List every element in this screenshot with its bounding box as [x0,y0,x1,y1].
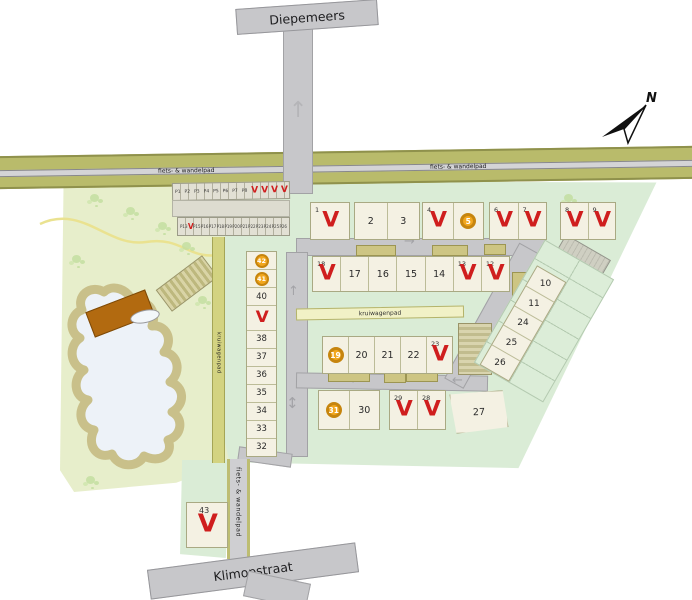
wheelbarrow-path-label: kruiwagenpad [216,332,222,463]
parking-stall-label: P20 [232,224,240,229]
parking-stall-label: P23 [256,224,264,229]
sold-marker-icon: V [566,212,582,231]
parking-stall-label: P6 [223,189,229,194]
parking-stall-label: P4 [204,189,210,194]
plot-number: 32 [256,442,267,452]
plot-number: 16 [377,269,389,280]
plot-33[interactable]: 33 [247,420,276,438]
plot-number: 36 [256,370,267,380]
plot-36[interactable]: 36 [247,366,276,384]
parking-stall-label: P5 [213,189,219,194]
parking-aisle [172,200,290,217]
plot-39[interactable]: V [247,305,276,330]
plot-group-top-1: 1V [310,202,350,240]
plot-3[interactable]: 3 [387,203,420,239]
sold-marker-icon: V [396,401,412,420]
plot-18[interactable]: 18V [313,257,340,291]
plot-42[interactable]: 42 [247,252,276,269]
plot-9[interactable]: 9V [588,203,616,239]
site-plan-map: fiets- & wandelpad fiets- & wandelpad ↑ … [0,0,692,600]
plot-40[interactable]: 40 [247,287,276,305]
sold-marker-icon: V [424,401,440,420]
sold-marker-icon: V [251,186,257,195]
street-sign-diepemeers: Diepemeers [235,0,378,35]
bike-path-label: fiets- & wandelpad [158,168,215,175]
option-badge: 42 [255,254,269,268]
plot-22[interactable]: 22 [400,337,426,373]
plot-group-top-3: 4V 5 [422,202,484,240]
parking-stall-label: P1 [175,189,181,194]
plot-group-inner-row: 19 20 21 22 23V [322,336,453,374]
parking-stall-label: P26 [279,224,287,229]
plot-35[interactable]: 35 [247,384,276,402]
plot-6[interactable]: 6V [490,203,518,239]
plot-41[interactable]: 41 [247,269,276,287]
plot-14[interactable]: 14 [425,257,453,291]
sold-marker-icon: V [430,212,446,231]
plot-number: 33 [256,424,267,434]
plot-number: 17 [349,269,361,280]
plot-1[interactable]: 1V [311,203,349,239]
bush-icon [126,207,135,215]
bike-path: fiets- & wandelpad fiets- & wandelpad [0,160,692,178]
plot-5[interactable]: 5 [453,203,484,239]
loop-road-west [286,252,308,457]
arrow-up-icon: ↑ [289,100,307,122]
plot-29[interactable]: 29V [390,391,417,429]
bush-icon [158,222,167,230]
option-badge: 19 [328,347,344,363]
plot-number: 1 [315,206,319,214]
plot-number: 25 [506,338,517,348]
sold-marker-icon: V [524,212,540,231]
sold-marker-icon: V [319,265,335,284]
plot-number: 3 [400,216,406,227]
sold-marker-icon: V [488,265,504,284]
parking-stall-label: P3 [194,189,200,194]
plot-number: 24 [517,318,528,328]
parking-stall-label: P16 [201,224,209,229]
sold-marker-icon: V [460,265,476,284]
bike-path-south: fiets- & wandelpad [227,459,250,559]
plot-number: 22 [407,350,419,361]
plot-38[interactable]: 38 [247,330,276,348]
parking-stall-label: P25 [272,224,280,229]
plot-15[interactable]: 15 [396,257,424,291]
plot-8[interactable]: 8V [561,203,588,239]
plot-27[interactable]: 27 [449,390,508,434]
plot-19[interactable]: 19 [323,337,348,373]
plot-group-left-column: 42 41 40 V 38 37 36 35 34 33 32 [246,251,277,457]
bush-icon [86,476,95,484]
option-badge: 41 [255,272,269,286]
bush-icon [564,194,573,202]
option-badge: 5 [460,213,476,229]
plot-group-top-5: 8V 9V [560,202,616,240]
plot-number: 2 [368,216,374,227]
garage-block [432,245,468,256]
plot-number: 11 [529,299,540,309]
plot-7[interactable]: 7V [518,203,547,239]
sold-marker-icon: V [271,186,277,195]
plot-number: 26 [494,358,505,368]
plot-23[interactable]: 23V [426,337,452,373]
plot-number: 35 [256,388,267,398]
parking-stall-label: P22 [248,224,256,229]
parking-stall-label: P18 [217,224,225,229]
parking-stall-label: P21 [240,224,248,229]
parking-stall-label: P24 [264,224,272,229]
option-badge: 31 [326,402,342,418]
plot-30[interactable]: 30 [349,391,380,429]
plot-31[interactable]: 31 [319,391,349,429]
wheelbarrow-path-vertical: kruiwagenpad [212,237,225,463]
garage-block [384,373,406,383]
plot-group-top-2: 2 3 [354,202,420,240]
sold-marker-icon: V [188,223,193,231]
arrow-left-icon: ← [452,374,463,387]
bush-icon [90,194,99,202]
plot-number: 20 [355,350,367,361]
plot-number: 10 [540,279,551,289]
sold-marker-icon: V [594,212,610,231]
plot-number: 21 [381,350,393,361]
plot-group-bottom-1: 31 30 [318,390,380,430]
plot-number: 30 [358,405,370,416]
parking-stall-label: P8 [242,188,248,193]
parking-stall-label: P13 [180,224,188,229]
plot-group-bottom-2: 29V 28V [389,390,446,430]
parking-stall-label: P7 [232,188,238,193]
arrow-up-down-icon: ↕ [286,396,299,411]
sold-marker-icon: V [432,346,448,365]
plot-number: 37 [256,352,267,362]
garage-block [356,245,396,256]
plot-12[interactable]: 12V [481,257,509,291]
street-name: Diepemeers [269,7,345,27]
north-label: N [646,91,657,106]
loop-road-top [296,238,546,256]
plot-20[interactable]: 20 [348,337,374,373]
plot-28[interactable]: 28V [417,391,445,429]
sold-marker-icon: V [281,186,287,195]
plot-group-top-4: 6V 7V [489,202,547,240]
parking-row-1: P1 P2 P3 P4 P5 P6 P7 P8 V V V V [172,181,290,201]
plot-number: 15 [405,269,417,280]
bush-icon [198,296,207,304]
bush-icon [182,242,191,250]
bush-icon [72,255,81,263]
wheelbarrow-path-label: kruiwagenpad [359,309,402,317]
sold-marker-icon: V [256,311,268,326]
bike-path-label: fiets- & wandelpad [235,467,243,559]
parking-row-2: P13 V P15 P16 P17 P18 P19 P20 P21 P22 P2… [177,217,290,236]
plot-16[interactable]: 16 [368,257,396,291]
parking-stall-label: P15 [193,224,201,229]
north-compass: N [598,93,662,151]
plot-21[interactable]: 21 [374,337,400,373]
plot-37[interactable]: 37 [247,348,276,366]
garage-block [484,244,506,255]
plot-number: 27 [473,406,485,417]
plot-group-mid-row: 18V 17 16 15 14 13V 12V [312,256,510,292]
plot-4[interactable]: 4V [423,203,453,239]
parking-stall-label: P19 [224,224,232,229]
sold-marker-icon: V [198,514,217,536]
parking-stall-label: P17 [209,224,217,229]
plot-number: 34 [256,406,267,416]
sold-marker-icon: V [496,212,512,231]
plot-2[interactable]: 2 [355,203,387,239]
plot-number: 38 [256,334,267,344]
plot-number: 14 [433,269,445,280]
sold-marker-icon: V [261,186,267,195]
plot-number: 40 [256,292,267,302]
sold-marker-icon: V [322,212,338,231]
arrow-up-icon: ↑ [288,285,299,298]
plot-17[interactable]: 17 [340,257,368,291]
plot-13[interactable]: 13V [453,257,481,291]
plot-43[interactable]: 43 V [186,502,228,548]
plot-32[interactable]: 32 [247,438,276,456]
bike-path-label: fiets- & wandelpad [430,164,487,171]
plot-34[interactable]: 34 [247,402,276,420]
parking-stall-label: P2 [184,189,190,194]
